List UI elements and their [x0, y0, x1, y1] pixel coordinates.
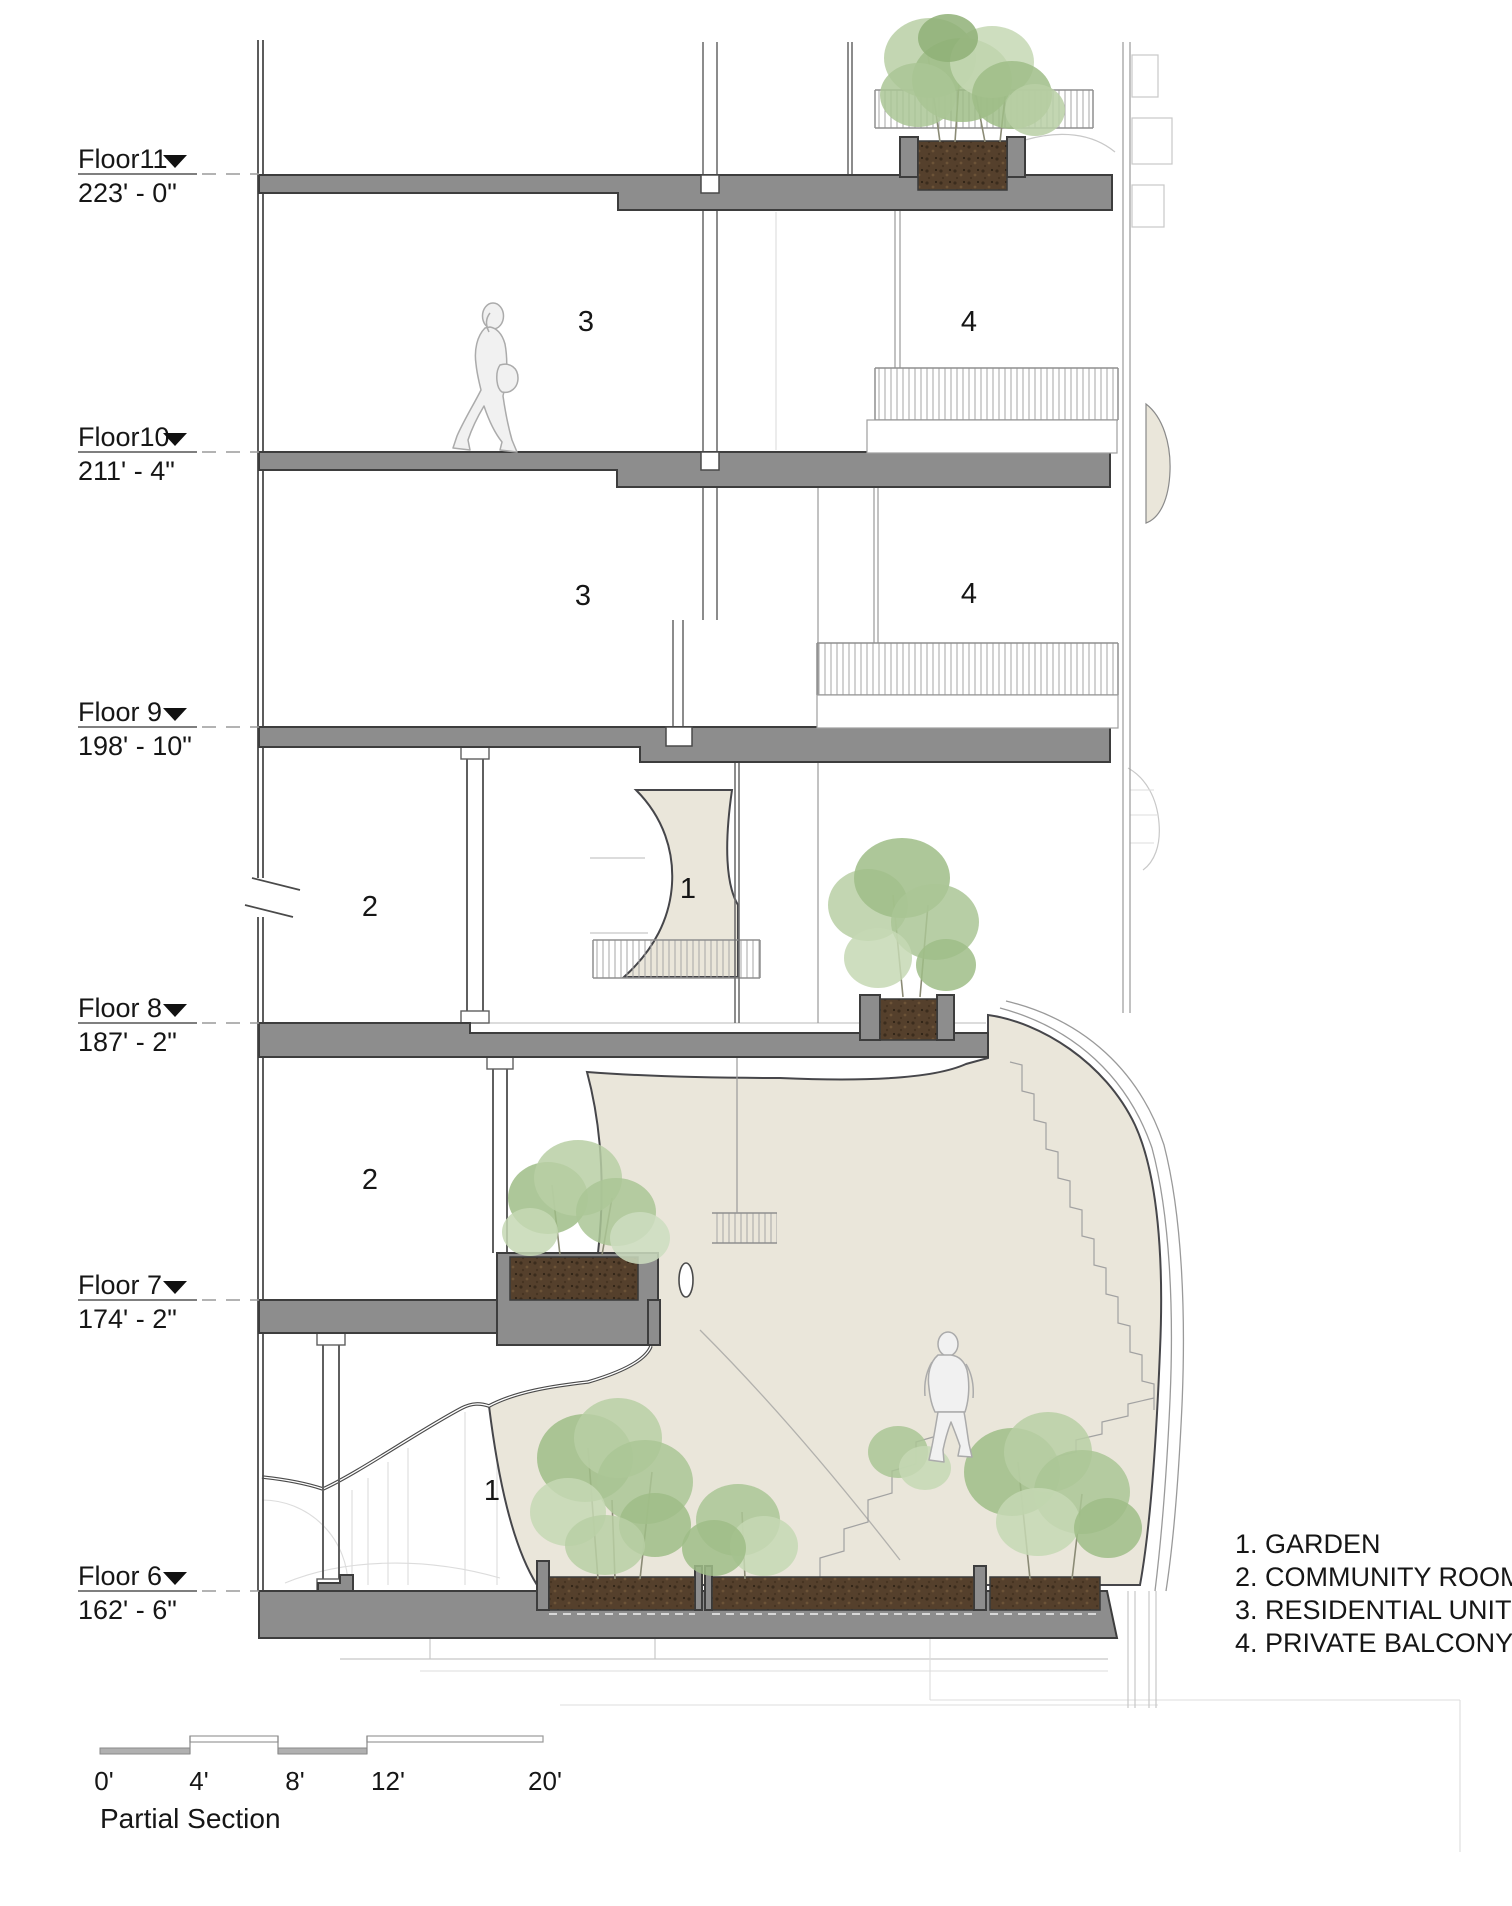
level-triangle-icon	[163, 1572, 187, 1585]
legend-item-community-room: 2. COMMUNITY ROOM	[1235, 1562, 1512, 1592]
level-triangle-icon	[163, 708, 187, 721]
floor-name: Floor 9	[78, 697, 162, 727]
floor-marker-8: Floor 8 187' - 2"	[78, 993, 259, 1057]
legend-item-residential-unit: 3. RESIDENTIAL UNIT	[1235, 1595, 1512, 1625]
floor-marker-11: Floor11 223' - 0"	[78, 144, 259, 208]
scale-tick-4: 4'	[189, 1766, 208, 1796]
level-triangle-icon	[163, 1281, 187, 1294]
floor-marker-6: Floor 6 162' - 6"	[78, 1561, 259, 1625]
space-label-residential: 3	[578, 306, 594, 338]
space-label-garden: 1	[484, 1475, 500, 1507]
floor-name: Floor11	[78, 144, 168, 174]
legend-item-garden: 1. GARDEN	[1235, 1529, 1381, 1559]
scale-tick-0: 0'	[94, 1766, 113, 1796]
floor-name: Floor 7	[78, 1270, 162, 1300]
scale-tick-12: 12'	[371, 1766, 405, 1796]
floor-markers: Floor11 223' - 0" Floor10 211' - 4" Floo…	[78, 144, 259, 1625]
scale-tick-8: 8'	[285, 1766, 304, 1796]
space-label-community: 2	[362, 1164, 378, 1196]
floor-name: Floor 8	[78, 993, 162, 1023]
space-label-community: 2	[362, 891, 378, 923]
floor-elevation: 174' - 2"	[78, 1304, 177, 1334]
level-triangle-icon	[163, 1004, 187, 1017]
floor-elevation: 162' - 6"	[78, 1595, 177, 1625]
space-label-garden: 1	[680, 873, 696, 905]
person-walking-floor10	[453, 303, 518, 452]
space-label-residential: 3	[575, 580, 591, 612]
floor-marker-10: Floor10 211' - 4"	[78, 422, 259, 486]
partial-section-page: Floor11 223' - 0" Floor10 211' - 4" Floo…	[0, 0, 1512, 1906]
legend-item-private-balcony: 4. PRIVATE BALCONY	[1235, 1628, 1512, 1658]
partial-section-drawing: Floor11 223' - 0" Floor10 211' - 4" Floo…	[0, 0, 1512, 1906]
legend: 1. GARDEN 2. COMMUNITY ROOM 3. RESIDENTI…	[1235, 1529, 1512, 1658]
space-label-balcony: 4	[961, 578, 977, 610]
drawing-title: Partial Section	[100, 1803, 281, 1834]
section-cut-wall	[245, 40, 300, 1591]
columns	[317, 747, 513, 1591]
scale-bar: 0' 4' 8' 12' 20'	[94, 1736, 562, 1796]
floor-elevation: 223' - 0"	[78, 178, 177, 208]
scale-tick-20: 20'	[528, 1766, 562, 1796]
floor-elevation: 198' - 10"	[78, 731, 192, 761]
floor-marker-9: Floor 9 198' - 10"	[78, 697, 259, 761]
floor-marker-7: Floor 7 174' - 2"	[78, 1270, 259, 1334]
floor-elevation: 187' - 2"	[78, 1027, 177, 1057]
floor-name: Floor10	[78, 422, 170, 452]
space-label-balcony: 4	[961, 306, 977, 338]
floor-name: Floor 6	[78, 1561, 162, 1591]
floor-elevation: 211' - 4"	[78, 456, 175, 486]
